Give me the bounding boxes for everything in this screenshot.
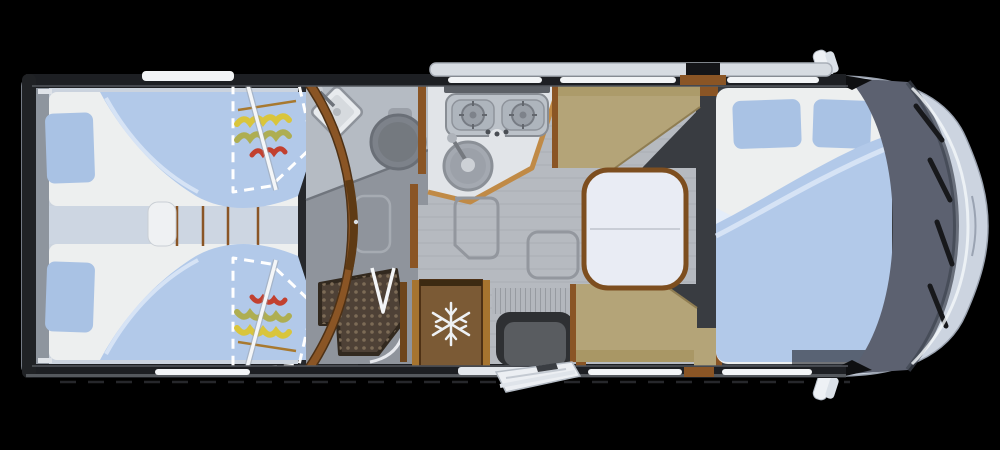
roof-vent — [686, 63, 720, 76]
bathroom-wall-jamb — [418, 82, 426, 174]
entry-step-mat — [504, 322, 566, 366]
entry-sill-blind — [492, 288, 572, 314]
window-kitchen — [448, 77, 542, 83]
window-bed-bottom — [722, 369, 812, 375]
motorhome-floorplan — [0, 0, 1000, 450]
wood-wall-segment-bottom — [684, 367, 714, 377]
dinette-side-cabinet — [694, 328, 718, 366]
bathroom-door-handle — [354, 220, 358, 224]
window-bedroom-bottom — [155, 369, 250, 375]
dinette-top-jamb — [700, 86, 718, 96]
double-bed-pillow-right — [812, 99, 872, 149]
shower-wall-jamb — [400, 282, 407, 362]
bathroom-door-jamb — [410, 184, 418, 268]
toilet-seat — [378, 122, 418, 162]
window-bed-top — [727, 77, 819, 83]
bathroom — [306, 80, 428, 364]
window-dinette-top — [560, 77, 676, 83]
twin-bed-bottom-pillow — [45, 261, 95, 333]
wood-wall-segment-top — [680, 75, 726, 85]
front-double-bed — [716, 88, 892, 366]
wall-bracket-top — [38, 89, 52, 94]
roof-awning-case — [430, 63, 832, 76]
floorplan-canvas — [0, 0, 1000, 450]
window-dinette-bottom — [588, 369, 682, 375]
twin-bed-top-pillow — [45, 112, 95, 184]
double-bed-pillow-left — [732, 99, 802, 149]
bedroom-step-stool — [148, 202, 176, 246]
wall-bracket-bottom — [38, 358, 52, 363]
window-bedroom-top — [142, 71, 234, 81]
fridge — [412, 280, 490, 366]
rear-wall — [22, 74, 36, 378]
